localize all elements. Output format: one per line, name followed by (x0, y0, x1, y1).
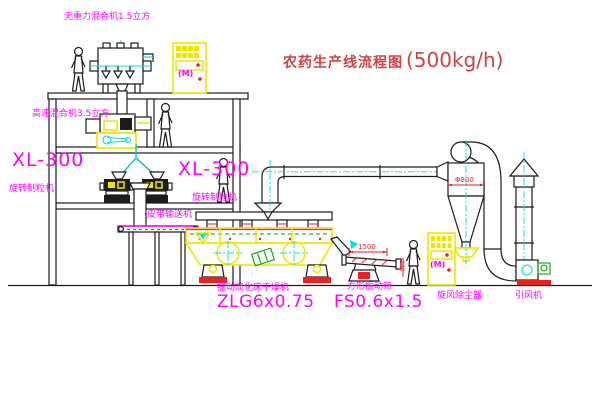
high-speed-mixer (86, 114, 151, 148)
label-high-speed-mixer: 高速混合机3.5立方 (32, 110, 109, 119)
label-screen-name: 方形振动筛 (347, 283, 392, 292)
label-screen-model: FS0.6x1.5 (334, 294, 423, 311)
control-cabinet-1 (173, 43, 206, 93)
dim-screen-length: 1500 (358, 244, 376, 251)
induced-draft-fan (516, 260, 551, 285)
label-gravity-mixer: 无重力混合机1.5立方 (64, 13, 150, 22)
label-granulator-right-name: 旋转制粒机 (192, 194, 237, 203)
exhaust-duct (252, 160, 466, 219)
label-dryer-model: ZLG6x0.75 (217, 294, 315, 311)
dim-cyclone-diameter: Φ800 (455, 177, 474, 184)
label-fan: 引风机 (515, 292, 542, 301)
title-capacity: (500kg/h) (406, 48, 503, 72)
gravity-mixer (90, 43, 153, 114)
cad-flow-diagram: 农药生产线流程图 (500kg/h) 无重力混合机1.5立方 高速混合机3.5立… (0, 0, 600, 403)
label-granulator-right-model: XL-300 (178, 160, 250, 179)
person-second-floor (159, 104, 173, 148)
title-text: 农药生产线流程图 (283, 52, 403, 72)
control-cabinet-2 (428, 233, 455, 285)
fluid-bed-dryer (186, 212, 351, 283)
cabinet1-motor-mark: (M) (178, 70, 193, 78)
dim-screen-height: 340 (398, 260, 404, 271)
label-cyclone: 旋风除尘器 (437, 292, 482, 301)
label-granulator-left-name: 旋转制粒机 (9, 185, 54, 194)
person-top-floor (72, 48, 86, 92)
drawing-title: 农药生产线流程图 (500kg/h) (283, 48, 503, 72)
person-ground (407, 241, 421, 285)
label-belt-conveyor: 皮带输送机 (147, 211, 192, 220)
cabinet2-motor-mark: (M) (430, 261, 445, 269)
granulator-left (100, 172, 134, 203)
label-granulator-left-model: XL-300 (12, 151, 84, 170)
